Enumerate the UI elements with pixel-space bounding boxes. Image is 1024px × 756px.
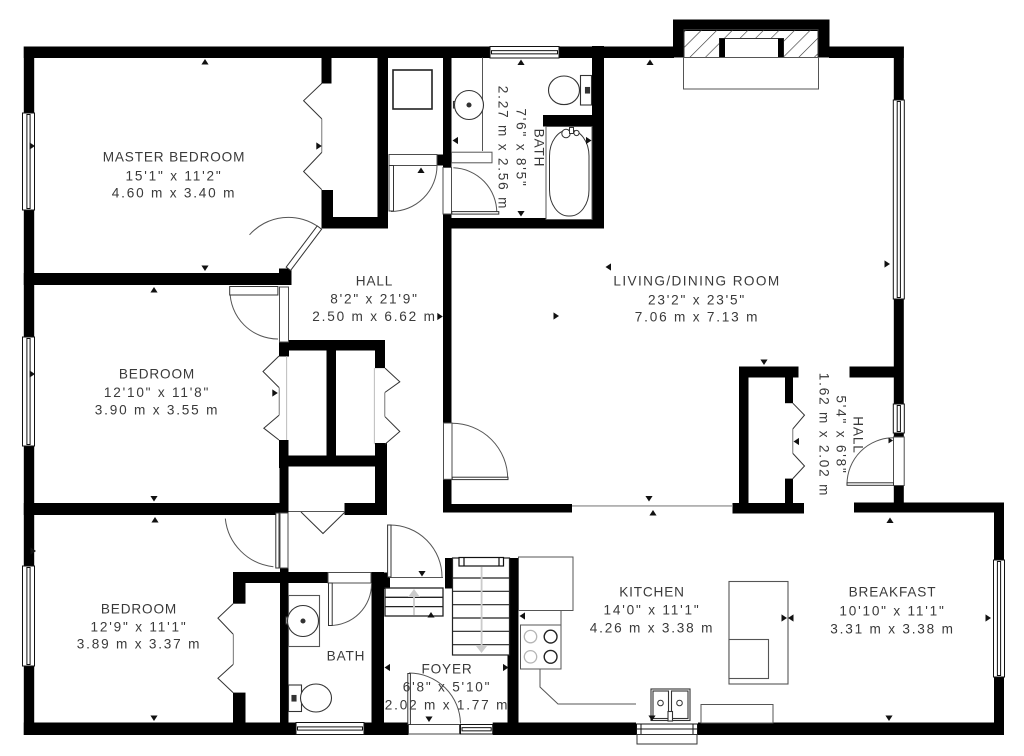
svg-text:HALL: HALL <box>851 416 866 453</box>
svg-text:2.27 m x 2.56 m: 2.27 m x 2.56 m <box>495 86 510 210</box>
svg-text:7.06 m x 7.13 m: 7.06 m x 7.13 m <box>635 310 759 325</box>
svg-text:8'2" x 21'9": 8'2" x 21'9" <box>330 292 419 307</box>
svg-text:14'0" x 11'1": 14'0" x 11'1" <box>604 603 701 618</box>
svg-text:10'10" x 11'1": 10'10" x 11'1" <box>839 604 945 619</box>
svg-text:12'9" x 11'1": 12'9" x 11'1" <box>91 620 188 635</box>
svg-text:BATH: BATH <box>531 129 546 168</box>
svg-text:BEDROOM: BEDROOM <box>119 367 195 382</box>
svg-text:2.50 m x 6.62 m: 2.50 m x 6.62 m <box>312 309 436 324</box>
svg-text:FOYER: FOYER <box>421 662 472 677</box>
svg-text:2.02 m x 1.77 m: 2.02 m x 1.77 m <box>385 698 509 713</box>
svg-text:BREAKFAST: BREAKFAST <box>849 585 937 600</box>
svg-text:5'4" x 6'8": 5'4" x 6'8" <box>834 395 849 474</box>
svg-text:3.31 m x 3.38 m: 3.31 m x 3.38 m <box>830 622 954 637</box>
svg-text:6'8" x 5'10": 6'8" x 5'10" <box>403 680 492 695</box>
svg-text:BEDROOM: BEDROOM <box>101 602 177 617</box>
svg-text:15'1" x 11'2": 15'1" x 11'2" <box>126 169 223 184</box>
svg-text:3.89 m x 3.37 m: 3.89 m x 3.37 m <box>77 637 201 652</box>
svg-text:4.26 m x 3.38 m: 4.26 m x 3.38 m <box>590 621 714 636</box>
svg-text:MASTER BEDROOM: MASTER BEDROOM <box>103 150 246 165</box>
svg-text:BATH: BATH <box>327 649 366 664</box>
svg-text:LIVING/DINING ROOM: LIVING/DINING ROOM <box>613 274 780 289</box>
svg-text:12'10" x 11'8": 12'10" x 11'8" <box>104 385 210 400</box>
svg-text:KITCHEN: KITCHEN <box>619 585 685 600</box>
svg-text:23'2" x 23'5": 23'2" x 23'5" <box>648 293 746 308</box>
svg-text:HALL: HALL <box>356 274 393 289</box>
svg-text:1.62 m x 2.02 m: 1.62 m x 2.02 m <box>817 373 832 497</box>
svg-text:3.90 m x 3.55 m: 3.90 m x 3.55 m <box>95 403 219 418</box>
svg-text:7'6" x 8'5": 7'6" x 8'5" <box>513 108 528 187</box>
svg-text:4.60 m x 3.40 m: 4.60 m x 3.40 m <box>112 186 236 201</box>
